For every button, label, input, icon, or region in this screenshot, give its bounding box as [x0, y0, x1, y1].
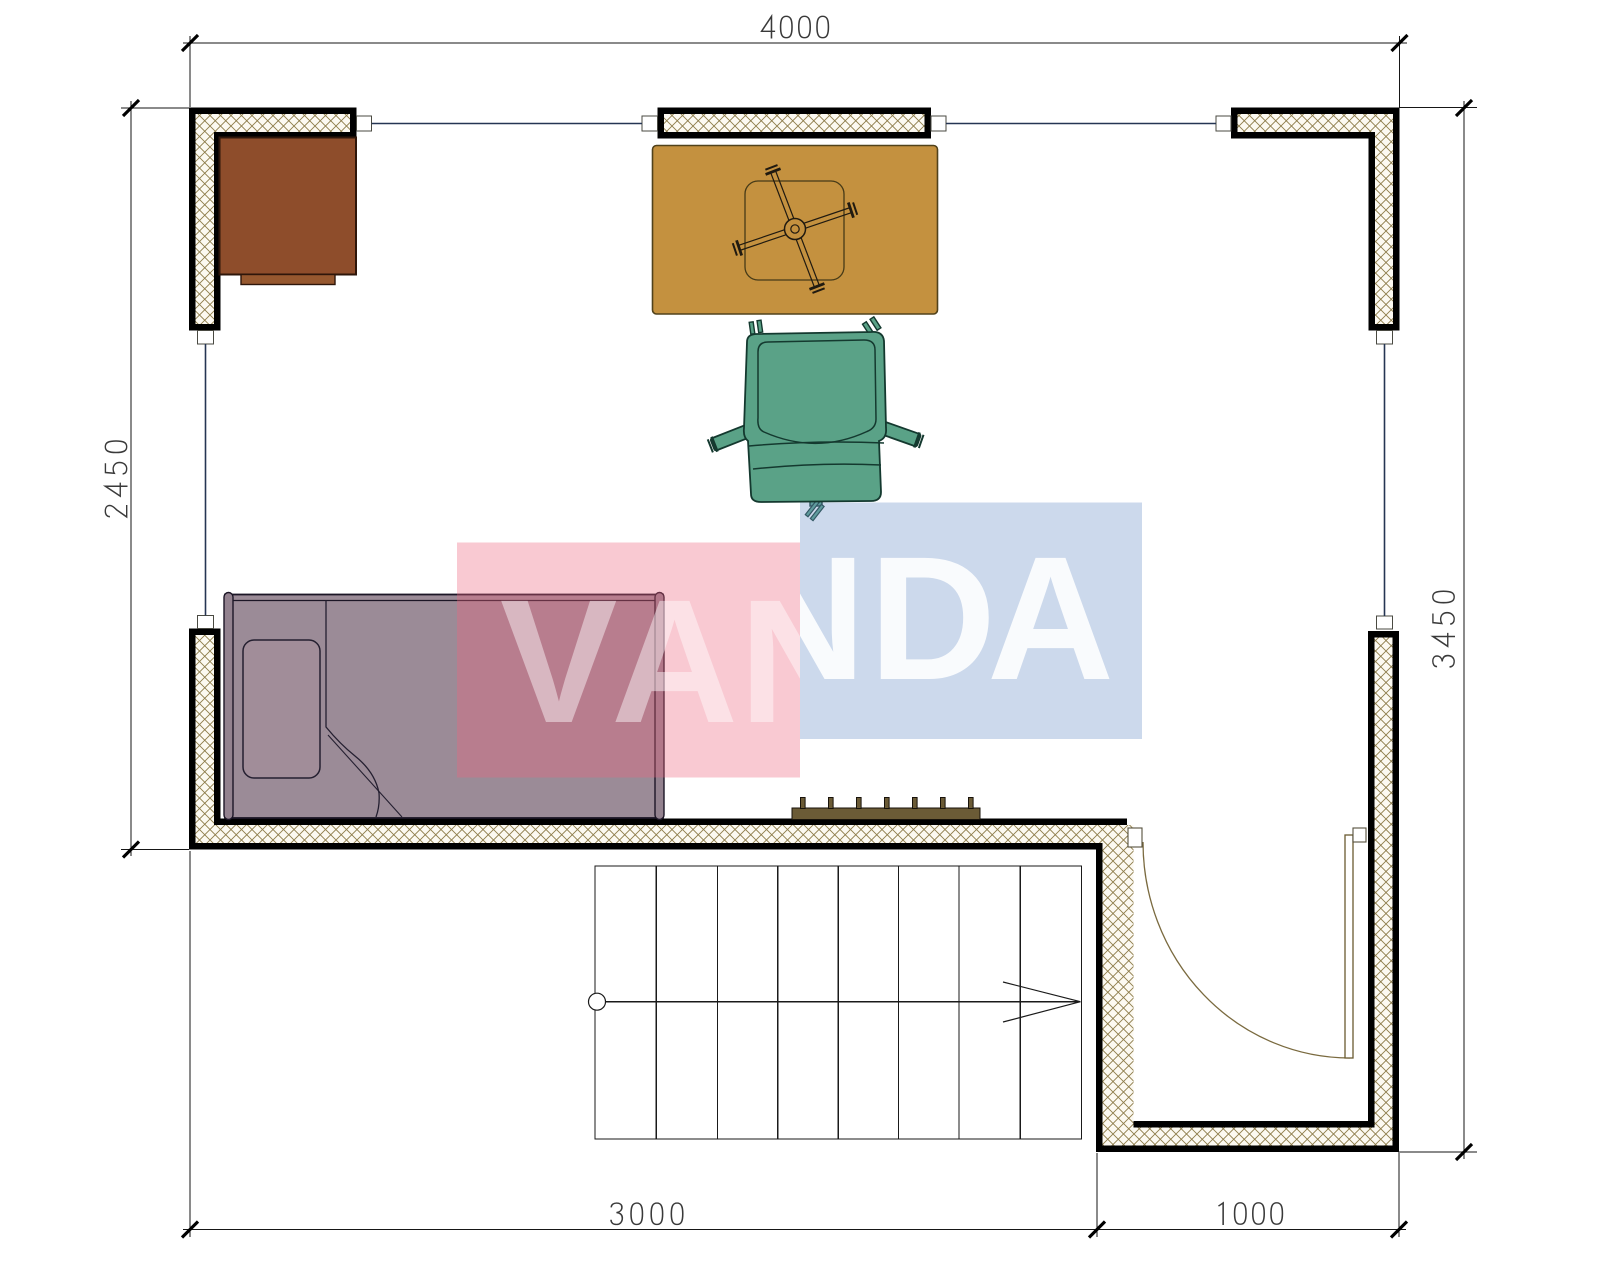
svg-text:A: A: [987, 521, 1114, 717]
svg-text:V: V: [500, 564, 617, 760]
svg-text:A: A: [611, 564, 738, 760]
svg-text:D: D: [869, 521, 996, 717]
